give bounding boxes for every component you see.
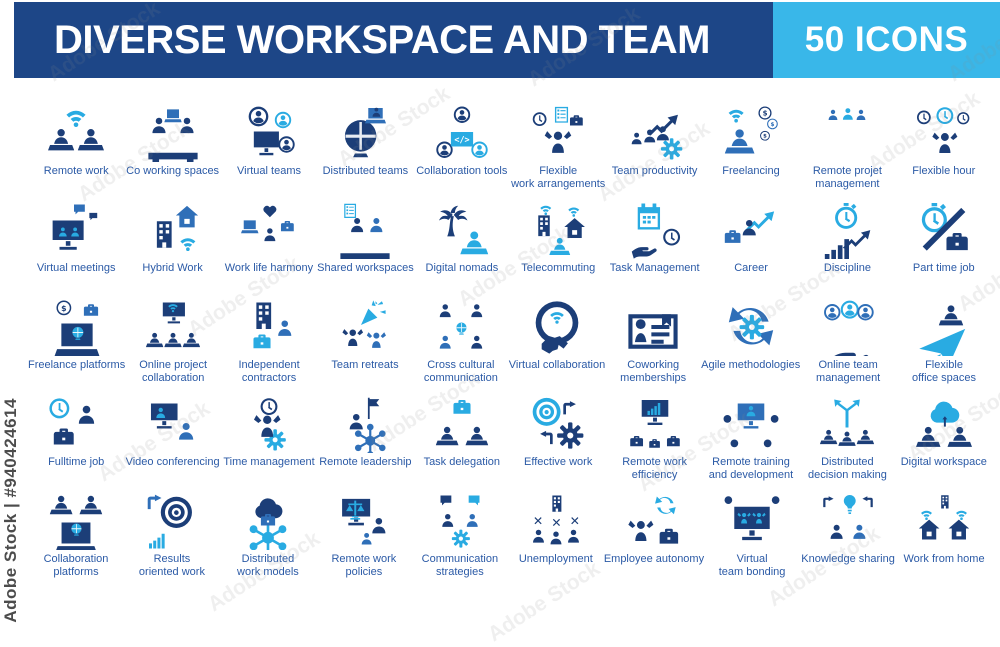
- virtual-team-bonding-icon: [724, 494, 780, 550]
- icon-label: Virtual meetings: [37, 262, 116, 275]
- distributed-work-models-icon: [240, 494, 296, 550]
- cross-cultural-communication-icon: [433, 300, 489, 356]
- distributed-decision-making-icon: [819, 397, 875, 453]
- communication-strategies-icon: [432, 494, 488, 550]
- icon-label: Work life harmony: [225, 262, 313, 275]
- icon-label: Remote work efficiency: [622, 456, 687, 483]
- icon-label: Remote work: [44, 165, 109, 178]
- icon-cell-virtual-teams: Virtual teams: [221, 106, 317, 203]
- icon-cell-virtual-team-bonding: Virtual team bonding: [704, 494, 800, 591]
- icon-label: Coworking memberships: [620, 359, 686, 386]
- icon-label: Effective work: [524, 456, 592, 469]
- online-team-management-icon: [820, 300, 876, 356]
- icon-label: Task delegation: [424, 456, 500, 469]
- icon-label: Freelancing: [722, 165, 779, 178]
- icon-label: Flexible hour: [912, 165, 975, 178]
- icon-cell-remote-training-development: Remote training and development: [703, 397, 799, 494]
- icon-cell-team-productivity: Team productivity: [606, 106, 702, 203]
- icon-label: Fulltime job: [48, 456, 104, 469]
- icon-cell-part-time-job: Part time job: [896, 203, 992, 300]
- flexible-hour-icon: [916, 106, 972, 162]
- knowledge-sharing-icon: [820, 494, 876, 550]
- icon-label: Career: [734, 262, 768, 275]
- icon-label: Results oriented work: [139, 553, 205, 580]
- icon-label: Digital workspace: [901, 456, 987, 469]
- stock-id-watermark: Adobe Stock | #940424614: [1, 398, 21, 623]
- freelance-platforms-icon: [49, 300, 105, 356]
- icon-label: Online team management: [816, 359, 880, 386]
- team-productivity-icon: [627, 106, 683, 162]
- icon-cell-independent-contractors: Independent contractors: [221, 300, 317, 397]
- shared-workspaces-icon: [337, 203, 393, 259]
- icon-label: Team retreats: [331, 359, 398, 372]
- digital-workspace-icon: [916, 397, 972, 453]
- icon-label: Agile methodologies: [701, 359, 800, 372]
- icon-cell-task-delegation: Task delegation: [414, 397, 510, 494]
- task-delegation-icon: [434, 397, 490, 453]
- icon-cell-collaboration-platforms: Collaboration platforms: [28, 494, 124, 591]
- freelancing-icon: [723, 106, 779, 162]
- icon-label: Part time job: [913, 262, 975, 275]
- icon-cell-freelance-platforms: Freelance platforms: [28, 300, 125, 397]
- icon-row: Virtual meetingsHybrid WorkWork life har…: [28, 203, 992, 300]
- icon-label: Flexible office spaces: [912, 359, 976, 386]
- hybrid-work-icon: [145, 203, 201, 259]
- icon-label: Video conferencing: [126, 456, 220, 469]
- icon-cell-knowledge-sharing: Knowledge sharing: [800, 494, 896, 591]
- icon-count-badge: 50 ICONS: [805, 20, 969, 60]
- flexible-office-spaces-icon: [916, 300, 972, 356]
- icon-cell-communication-strategies: Communication strategies: [412, 494, 508, 591]
- icon-cell-digital-workspace: Digital workspace: [896, 397, 992, 494]
- icon-cell-co-working-spaces: Co working spaces: [124, 106, 220, 203]
- icon-label: Time management: [223, 456, 314, 469]
- collaboration-platforms-icon: [48, 494, 104, 550]
- icon-label: Virtual team bonding: [719, 553, 786, 580]
- icon-label: Employee autonomy: [604, 553, 704, 566]
- icon-cell-team-retreats: Team retreats: [317, 300, 413, 397]
- video-conferencing-icon: [145, 397, 201, 453]
- work-life-harmony-icon: [241, 203, 297, 259]
- icon-label: Distributed teams: [323, 165, 409, 178]
- icon-cell-virtual-collaboration: Virtual collaboration: [509, 300, 605, 397]
- icon-cell-flexible-work-arrangements: Flexible work arrangements: [510, 106, 606, 203]
- effective-work-icon: [530, 397, 586, 453]
- icon-label: Flexible work arrangements: [511, 165, 605, 192]
- icon-cell-telecommuting: Telecommuting: [510, 203, 606, 300]
- icon-cell-distributed-teams: Distributed teams: [317, 106, 413, 203]
- header-banner: DIVERSE WORKSPACE AND TEAM 50 ICONS: [14, 2, 1000, 78]
- icon-label: Shared workspaces: [317, 262, 414, 275]
- icon-label: Discipline: [824, 262, 871, 275]
- icon-label: Unemployment: [519, 553, 593, 566]
- icon-row: Fulltime jobVideo conferencingTime manag…: [28, 397, 992, 494]
- icon-grid: Remote workCo working spacesVirtual team…: [28, 106, 992, 591]
- icon-label: Remote training and development: [709, 456, 793, 483]
- icon-cell-remote-work: Remote work: [28, 106, 124, 203]
- icon-label: Online project collaboration: [139, 359, 207, 386]
- icon-label: Hybrid Work: [142, 262, 202, 275]
- icon-cell-remote-work-efficiency: Remote work efficiency: [606, 397, 702, 494]
- discipline-icon: [819, 203, 875, 259]
- results-oriented-work-icon: [144, 494, 200, 550]
- icon-label: Remote projet management: [813, 165, 882, 192]
- employee-autonomy-icon: [626, 494, 682, 550]
- icon-cell-results-oriented-work: Results oriented work: [124, 494, 220, 591]
- icon-cell-distributed-decision-making: Distributed decision making: [799, 397, 895, 494]
- part-time-job-icon: [916, 203, 972, 259]
- remote-training-development-icon: [723, 397, 779, 453]
- icon-cell-online-project-collaboration: Online project collaboration: [125, 300, 221, 397]
- icon-label: Remote work policies: [331, 553, 396, 580]
- icon-cell-shared-workspaces: Shared workspaces: [317, 203, 414, 300]
- icon-label: Virtual collaboration: [509, 359, 605, 372]
- distributed-teams-icon: [337, 106, 393, 162]
- icon-cell-career: Career: [703, 203, 799, 300]
- icon-label: Collaboration platforms: [44, 553, 109, 580]
- virtual-collaboration-icon: [529, 300, 585, 356]
- icon-cell-remote-leadership: Remote leadership: [317, 397, 413, 494]
- icon-cell-work-life-harmony: Work life harmony: [221, 203, 317, 300]
- independent-contractors-icon: [241, 300, 297, 356]
- telecommuting-icon: [530, 203, 586, 259]
- remote-work-icon: [48, 106, 104, 162]
- icon-cell-virtual-meetings: Virtual meetings: [28, 203, 124, 300]
- icon-label: Task Management: [610, 262, 700, 275]
- icon-cell-flexible-office-spaces: Flexible office spaces: [896, 300, 992, 397]
- icon-label: Digital nomads: [426, 262, 499, 275]
- icon-label: Communication strategies: [422, 553, 498, 580]
- icon-cell-online-team-management: Online team management: [800, 300, 896, 397]
- icon-cell-remote-project-management: Remote projet management: [799, 106, 895, 203]
- icon-label: Virtual teams: [237, 165, 301, 178]
- flexible-work-arrangements-icon: [530, 106, 586, 162]
- icon-cell-digital-nomads: Digital nomads: [414, 203, 510, 300]
- remote-work-policies-icon: [336, 494, 392, 550]
- co-working-spaces-icon: [145, 106, 201, 162]
- remote-project-management-icon: [819, 106, 875, 162]
- agile-methodologies-icon: [723, 300, 779, 356]
- header-title-block: DIVERSE WORKSPACE AND TEAM: [14, 2, 773, 78]
- icon-cell-unemployment: Unemployment: [508, 494, 604, 591]
- icon-label: Telecommuting: [521, 262, 595, 275]
- icon-label: Independent contractors: [238, 359, 299, 386]
- icon-cell-task-management: Task Management: [606, 203, 702, 300]
- icon-cell-hybrid-work: Hybrid Work: [124, 203, 220, 300]
- career-icon: [723, 203, 779, 259]
- page-title: DIVERSE WORKSPACE AND TEAM: [54, 20, 710, 60]
- virtual-teams-icon: [241, 106, 297, 162]
- unemployment-icon: [528, 494, 584, 550]
- online-project-collaboration-icon: [145, 300, 201, 356]
- team-retreats-icon: [337, 300, 393, 356]
- remote-work-efficiency-icon: [627, 397, 683, 453]
- icon-label: Cross cultural communication: [424, 359, 498, 386]
- icon-label: Collaboration tools: [416, 165, 507, 178]
- icon-cell-video-conferencing: Video conferencing: [124, 397, 220, 494]
- icon-cell-coworking-memberships: Coworking memberships: [605, 300, 701, 397]
- icon-cell-fulltime-job: Fulltime job: [28, 397, 124, 494]
- icon-label: Knowledge sharing: [801, 553, 895, 566]
- icon-cell-flexible-hour: Flexible hour: [896, 106, 992, 203]
- icon-label: Co working spaces: [126, 165, 219, 178]
- icon-cell-work-from-home: Work from home: [896, 494, 992, 591]
- digital-nomads-icon: [434, 203, 490, 259]
- virtual-meetings-icon: [48, 203, 104, 259]
- collaboration-tools-icon: [434, 106, 490, 162]
- task-management-icon: [627, 203, 683, 259]
- icon-cell-collaboration-tools: Collaboration tools: [414, 106, 510, 203]
- icon-cell-cross-cultural-communication: Cross cultural communication: [413, 300, 509, 397]
- icon-row: Collaboration platformsResults oriented …: [28, 494, 992, 591]
- icon-cell-distributed-work-models: Distributed work models: [220, 494, 316, 591]
- remote-leadership-icon: [337, 397, 393, 453]
- icon-label: Remote leadership: [319, 456, 411, 469]
- icon-label: Freelance platforms: [28, 359, 125, 372]
- icon-count-block: 50 ICONS: [773, 2, 1000, 78]
- icon-cell-discipline: Discipline: [799, 203, 895, 300]
- icon-row: Remote workCo working spacesVirtual team…: [28, 106, 992, 203]
- work-from-home-icon: [916, 494, 972, 550]
- icon-cell-time-management: Time management: [221, 397, 317, 494]
- icon-label: Team productivity: [612, 165, 698, 178]
- icon-label: Distributed decision making: [808, 456, 887, 483]
- fulltime-job-icon: [48, 397, 104, 453]
- icon-cell-freelancing: Freelancing: [703, 106, 799, 203]
- icon-cell-effective-work: Effective work: [510, 397, 606, 494]
- icon-row: Freelance platformsOnline project collab…: [28, 300, 992, 397]
- coworking-memberships-icon: [625, 300, 681, 356]
- icon-label: Distributed work models: [237, 553, 299, 580]
- icon-cell-agile-methodologies: Agile methodologies: [701, 300, 800, 397]
- icon-cell-remote-work-policies: Remote work policies: [316, 494, 412, 591]
- icon-cell-employee-autonomy: Employee autonomy: [604, 494, 704, 591]
- icon-label: Work from home: [903, 553, 984, 566]
- time-management-icon: [241, 397, 297, 453]
